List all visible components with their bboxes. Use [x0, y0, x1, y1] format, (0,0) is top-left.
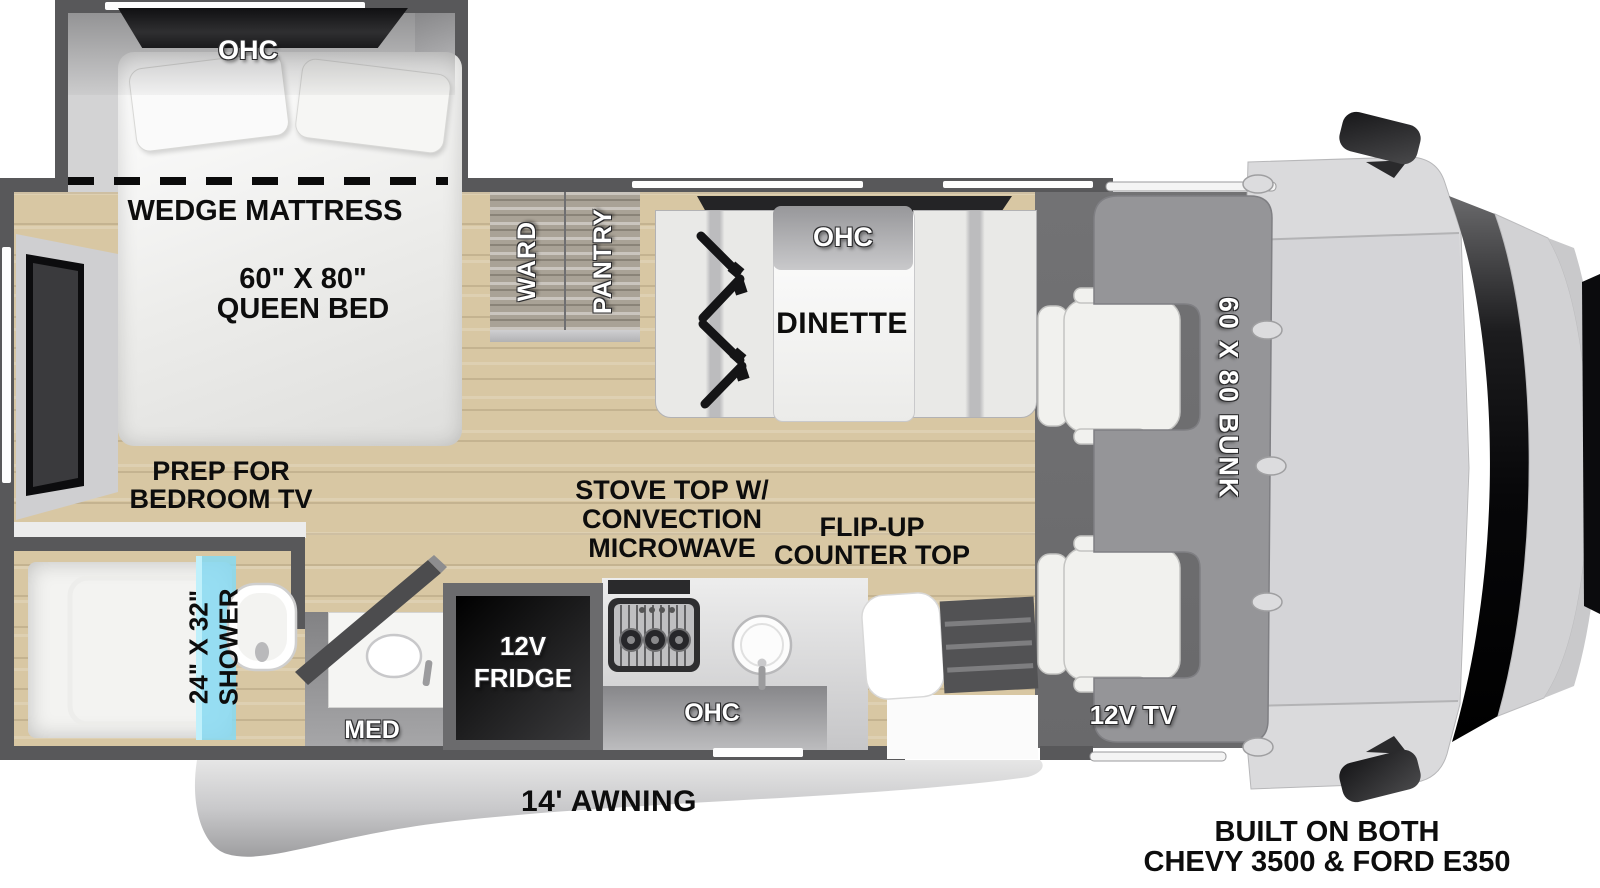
- rv-floorplan: OHC WEDGE MATTRESS 60" X 80" QUEEN BED P…: [0, 0, 1600, 888]
- pantry-label: PANTRY: [590, 208, 616, 314]
- stove-top: [608, 598, 700, 672]
- passenger-seat: [1038, 536, 1180, 692]
- kitchen-ohc-label: OHC: [662, 700, 762, 726]
- bed-size: 60" X 80": [239, 263, 366, 295]
- fridge-label: 12V FRIDGE: [453, 630, 593, 694]
- dinette-label: DINETTE: [742, 308, 942, 340]
- cab-tv-label: 12V TV: [1063, 702, 1203, 729]
- tv-prep-label: PREP FOR BEDROOM TV: [96, 457, 346, 514]
- shower-label-box: 24" X 32" SHOWER: [123, 557, 303, 737]
- kitchen-sink: [733, 616, 791, 690]
- body-strip-bottom: [1090, 752, 1226, 761]
- bedroom-ohc-label: OHC: [198, 36, 298, 64]
- seat-belts: [701, 236, 742, 404]
- chassis-note: BUILT ON BOTH CHEVY 3500 & FORD E350: [1127, 817, 1527, 877]
- awning-label: 14' AWNING: [489, 786, 729, 818]
- front-grille: [1582, 274, 1600, 614]
- bunk-label: 60 X 80 BUNK: [1214, 297, 1242, 500]
- flip-up-counter-label: FLIP-UP COUNTER TOP: [752, 513, 992, 569]
- queen-bed-label: 60" X 80" QUEEN BED: [153, 264, 453, 325]
- bed-type: QUEEN BED: [217, 293, 389, 325]
- wedge-mattress-label: WEDGE MATTRESS: [115, 196, 415, 226]
- shower-label: 24" X 32" SHOWER: [183, 589, 243, 706]
- vanity-sink: [367, 635, 433, 686]
- med-cabinet-label: MED: [322, 717, 422, 743]
- flip-up-counter: [860, 591, 945, 700]
- entry-steps: [940, 597, 1039, 694]
- pantry-label-box: PANTRY: [528, 186, 678, 336]
- bunk-label-box: 60 X 80 BUNK: [1078, 248, 1378, 548]
- dinette-ohc-label: OHC: [793, 223, 893, 251]
